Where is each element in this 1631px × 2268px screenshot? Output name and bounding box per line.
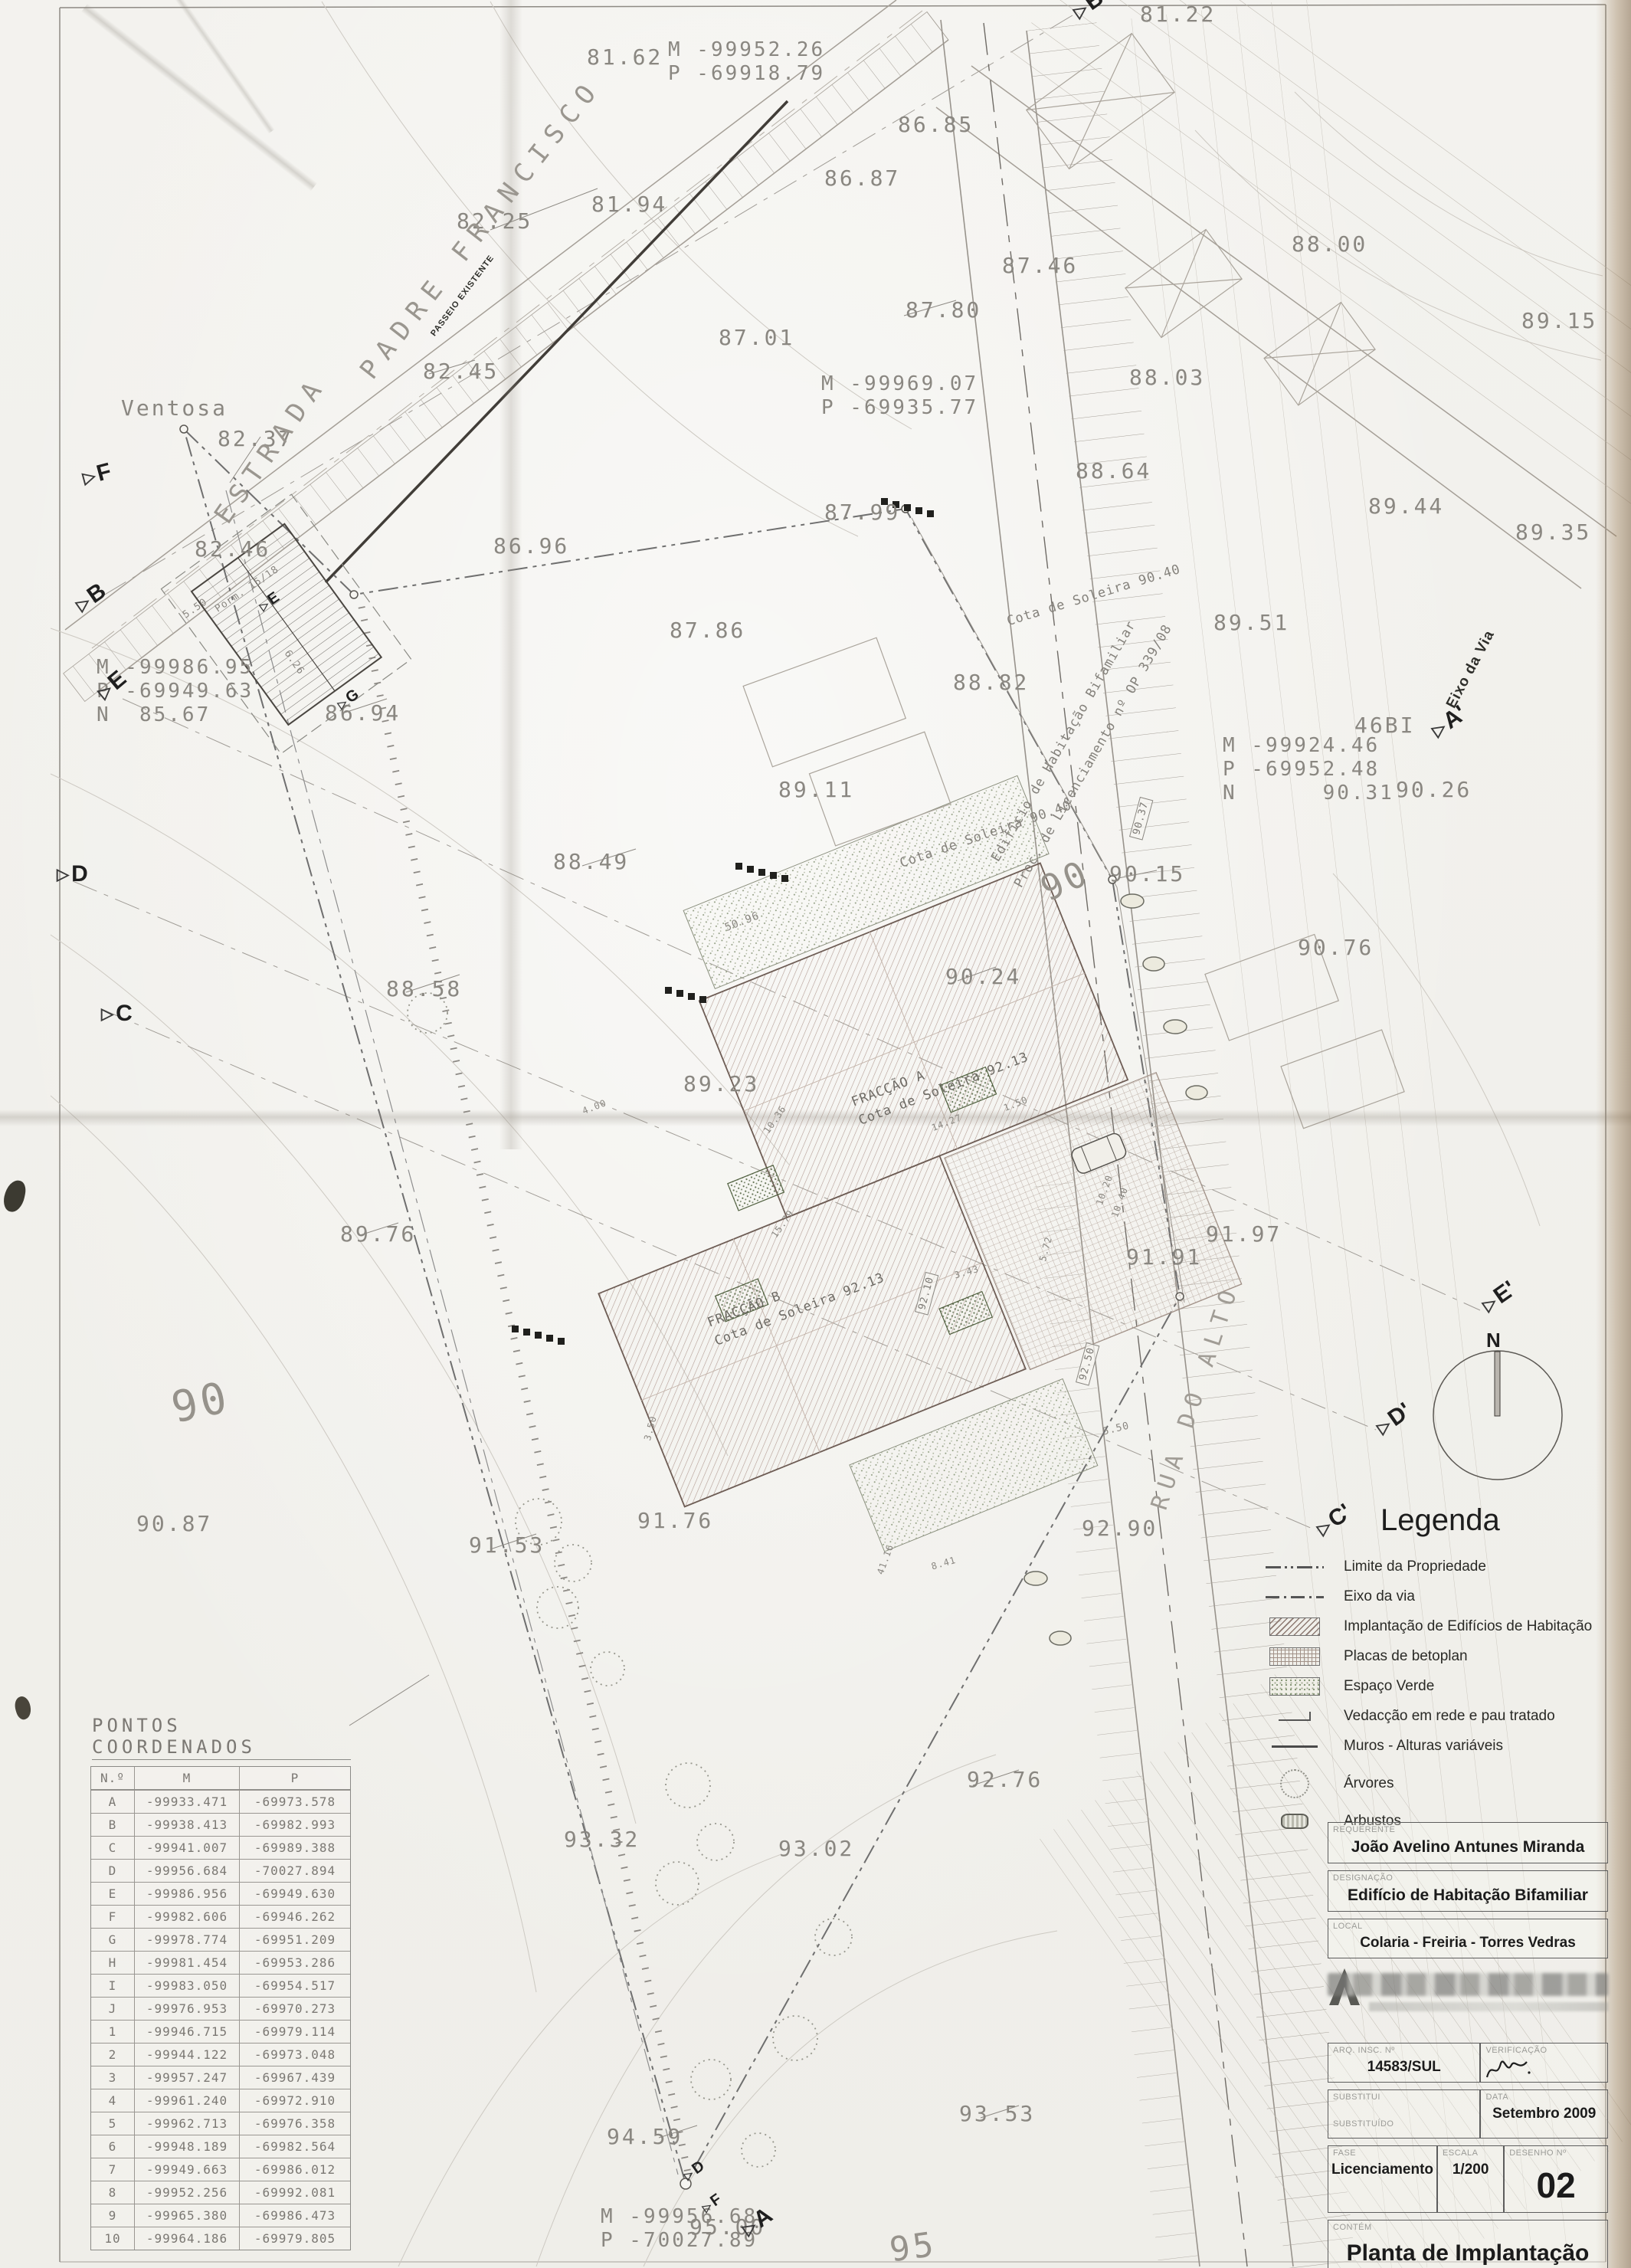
legend-item: Implantação de Edifícios de Habitação [1266,1614,1618,1639]
map-label: 89.76 [340,1221,416,1247]
field-label: ESCALA [1443,2148,1478,2158]
map-label: 95 [887,2225,939,2268]
legend-item-label: Muros - Alturas variáveis [1344,1738,1503,1755]
map-label: 89.51 [1213,610,1289,636]
map-label: 89.35 [1515,519,1591,546]
legend-item-label: Implantação de Edifícios de Habitação [1344,1618,1592,1635]
table-row: 3 -99957.247 -69967.439 [91,2066,350,2089]
map-label: 86.85 [898,112,974,138]
table-row: F -99982.606 -69946.262 [91,1905,350,1928]
table-row: D -99956.684 -70027.894 [91,1859,350,1882]
map-label: 94.59 [607,2124,683,2150]
legend-panel: Legenda Limite da Propriedade Eixo da vi… [1266,1503,1618,1839]
map-label: 87.99 [824,500,900,526]
section-marker: ▷ N [1486,1329,1501,1352]
map-label: M -99956.68 P -70027.89 [601,2205,758,2253]
table-row: J -99976.953 -69970.273 [91,1997,350,2020]
legend-item-label: Espaço Verde [1344,1678,1434,1695]
coordinates-table-body: A -99933.471 -69973.578 B -99938.413 -69… [91,1790,350,2250]
field-label: SUBSTITUÍDO [1333,2119,1394,2129]
architect-logo-row [1328,1965,1608,2036]
map-label: 91.76 [637,1508,713,1534]
legend-item: Limite da Propriedade [1266,1555,1618,1579]
legend-item-label: Vedacção em rede e pau tratado [1344,1708,1555,1725]
table-row: 1 -99946.715 -69979.114 [91,2020,350,2043]
map-label: 81.94 [591,192,667,218]
table-row: I -99983.050 -69954.517 [91,1974,350,1997]
title-block: REQUERENTE João Avelino Antunes Miranda … [1328,1822,1608,2268]
field-value: Colaria - Freiria - Torres Vedras [1328,1919,1607,1958]
map-label: 87.80 [906,297,981,323]
legend-symbol-icon [1266,1704,1324,1729]
legend-item: Árvores [1266,1764,1618,1804]
table-row: A -99933.471 -69973.578 [91,1790,350,1813]
field-arq-insc: ARQ. INSC. Nº 14583/SUL [1328,2043,1480,2083]
legend-item-label: Placas de betoplan [1344,1648,1468,1665]
section-arrow-icon: ▷ [57,865,69,884]
map-label: M -99969.07 P -69935.77 [821,372,978,420]
map-label: 88.00 [1292,231,1367,257]
field-substitui: SUBSTITUI SUBSTITUÍDO [1328,2089,1480,2139]
table-row: 10 -99964.186 -69979.805 [91,2227,350,2250]
architect-stamp-blurred [1369,2002,1608,2011]
field-desenho-n: DESENHO Nº 02 [1504,2145,1608,2213]
legend-item: Muros - Alturas variáveis [1266,1734,1618,1758]
field-label: LOCAL [1333,1922,1363,1931]
coordinates-table-header: N.º M P [91,1767,350,1790]
map-label: 93.53 [959,2101,1035,2127]
table-row: G -99978.774 -69951.209 [91,1928,350,1951]
legend-item-label: Eixo da via [1344,1588,1415,1605]
field-label: DESENHO Nº [1509,2148,1566,2158]
field-label: CONTÉM [1333,2223,1372,2232]
map-label: 92.90 [1082,1516,1158,1542]
legend-item: Eixo da via [1266,1585,1618,1609]
column-header: N.º [91,1767,135,1789]
map-label: 86.87 [824,166,900,192]
map-label: M -99924.46 P -69952.48 N 90.31 [1223,734,1394,806]
field-label: ARQ. INSC. Nº [1333,2046,1395,2055]
map-label: 86.94 [325,700,401,726]
table-row: 9 -99965.380 -69986.473 [91,2204,350,2227]
field-verificacao: VERIFICAÇÃO [1480,2043,1608,2083]
map-label: 82.46 [195,536,270,562]
legend-symbol-icon [1266,1674,1324,1699]
map-label: 90.24 [945,964,1021,990]
table-row: H -99981.454 -69953.286 [91,1951,350,1974]
legend-item: Espaço Verde [1266,1674,1618,1699]
legend-symbol-icon [1266,1764,1324,1804]
map-label: 92.76 [967,1767,1043,1793]
map-label: 89.23 [683,1071,759,1097]
map-label: Ventosa [121,395,228,421]
section-arrow-icon: ▷ [101,1005,113,1024]
field-label: SUBSTITUI [1333,2093,1380,2102]
table-row: 2 -99944.122 -69973.048 [91,2043,350,2066]
legend-item: Placas de betoplan [1266,1644,1618,1669]
map-label: 88.58 [386,976,462,1002]
map-label: 89.44 [1368,493,1444,519]
map-label: 89.11 [778,777,854,803]
verification-signature [1481,2054,1534,2085]
map-label: 90.15 [1109,861,1185,887]
map-label: 88.03 [1129,365,1205,391]
map-label: 91.53 [469,1532,545,1558]
table-row: C -99941.007 -69989.388 [91,1836,350,1859]
coordinates-table: PONTOS COORDENADOS N.º M P A -99933.471 … [90,1715,351,2250]
field-escala: ESCALA 1/200 [1437,2145,1504,2213]
legend-symbol-icon [1266,1809,1324,1834]
field-requerente: REQUERENTE João Avelino Antunes Miranda [1328,1822,1608,1863]
field-designacao: DESIGNAÇÃO Edifício de Habitação Bifamil… [1328,1870,1608,1912]
field-fase: FASE Licenciamento [1328,2145,1437,2213]
field-label: FASE [1333,2148,1356,2158]
table-row: B -99938.413 -69982.993 [91,1813,350,1836]
map-label: 87.86 [670,618,745,644]
map-label: 89.15 [1521,308,1597,334]
section-marker: ▷ D [57,861,88,887]
map-label: 93.02 [778,1836,854,1862]
map-label: 90.26 [1396,777,1472,803]
table-row: 4 -99961.240 -69972.910 [91,2089,350,2112]
coordinates-table-title: PONTOS COORDENADOS [92,1715,351,1760]
map-label: 87.01 [719,325,794,351]
map-label: 88.49 [553,849,629,875]
field-data: DATA Setembro 2009 [1480,2089,1608,2139]
map-label: 87.46 [1002,253,1078,279]
map-label: 81.22 [1140,2,1216,28]
legend-symbol-icon [1266,1614,1324,1639]
map-label: 82.45 [423,359,499,385]
map-label: M -99952.26 P -69918.79 [668,38,825,86]
column-header: P [240,1767,350,1789]
table-row: 7 -99949.663 -69986.012 [91,2158,350,2181]
table-row: E -99986.956 -69949.630 [91,1882,350,1905]
legend-symbol-icon [1266,1644,1324,1669]
legend-symbol-icon [1266,1734,1324,1758]
architect-stamp-blurred [1328,1973,1608,1996]
field-contem: CONTÉM Planta de Implantação [1328,2220,1608,2268]
map-label: 93.32 [564,1827,640,1853]
legend-item-label: Árvores [1344,1775,1394,1792]
table-row: 5 -99962.713 -69976.358 [91,2112,350,2135]
field-label: REQUERENTE [1333,1825,1395,1834]
field-label: DATA [1485,2093,1508,2102]
table-row: 6 -99948.189 -69982.564 [91,2135,350,2158]
scanned-site-plan-sheet: 81.2281.62M -99952.26 P -69918.7986.8586… [0,0,1631,2268]
field-local: LOCAL Colaria - Freiria - Torres Vedras [1328,1919,1608,1958]
section-marker: ▷ C [101,1001,133,1027]
legend-item: Vedacção em rede e pau tratado [1266,1704,1618,1729]
legend-symbol-icon [1266,1585,1324,1609]
column-header: M [135,1767,240,1789]
table-row: 8 -99952.256 -69992.081 [91,2181,350,2204]
legend-title: Legenda [1380,1503,1618,1538]
paper-fold-crease [0,1109,1631,1126]
map-label: 81.62 [587,44,663,70]
map-label: 91.97 [1206,1221,1282,1247]
legend-symbol-icon [1266,1555,1324,1579]
map-label: 86.96 [493,533,569,559]
map-label: 88.82 [953,670,1029,696]
map-label: 90.76 [1298,935,1374,961]
map-label: 91.91 [1126,1244,1202,1270]
map-label: 90.87 [136,1511,212,1537]
legend-items: Limite da Propriedade Eixo da via Implan… [1266,1555,1618,1834]
field-label: DESIGNAÇÃO [1333,1873,1393,1883]
legend-item-label: Limite da Propriedade [1344,1558,1486,1575]
map-label: 88.64 [1076,458,1151,484]
